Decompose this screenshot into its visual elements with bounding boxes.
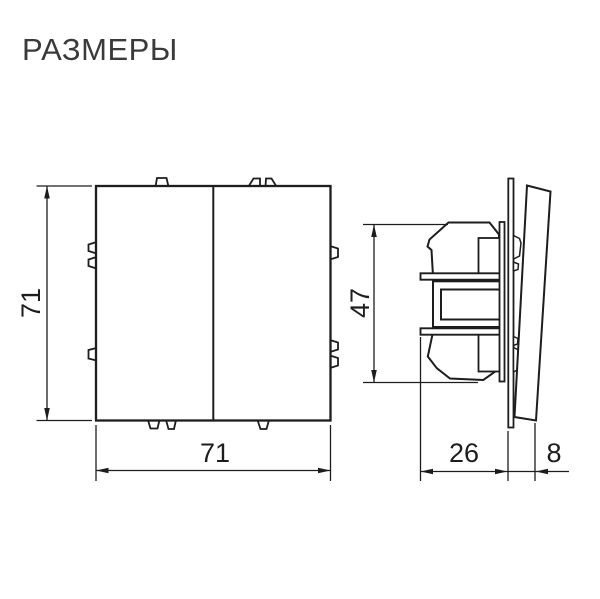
dim-side-protrusion-label: 8 — [546, 438, 561, 468]
arrowhead-up — [371, 225, 377, 238]
arrowhead-left — [96, 468, 109, 474]
arrowhead-right — [495, 469, 508, 475]
mechanism-step-bottom — [479, 333, 502, 372]
mounting-ear-top — [421, 273, 502, 279]
dim-side-depth-label: 26 — [449, 438, 479, 468]
arrowhead-left-outside — [536, 469, 549, 475]
side-view — [421, 179, 551, 428]
dim-front-height-label: 71 — [16, 288, 46, 318]
arrowhead-down — [44, 408, 50, 421]
arrowhead-up — [44, 186, 50, 199]
arrowhead-left — [421, 469, 434, 475]
mechanism-step-top — [479, 238, 502, 276]
arrowhead-right — [318, 468, 331, 474]
dim-front-width: 71 — [96, 425, 331, 481]
mounting-ear-bottom — [421, 328, 502, 334]
dim-side-height-label: 47 — [345, 288, 375, 318]
actuator-tab — [514, 337, 519, 346]
arrowhead-down — [371, 370, 377, 383]
frame-plate — [508, 179, 513, 428]
dimensions-drawing: 71 71 — [0, 0, 600, 599]
mechanism-face-strip — [500, 222, 505, 382]
front-view — [89, 178, 339, 429]
actuator-tab — [514, 262, 519, 271]
actuator-tab — [514, 236, 522, 260]
rocker-side-profile — [515, 186, 551, 421]
dim-front-height: 71 — [16, 186, 92, 421]
dim-front-width-label: 71 — [200, 438, 230, 468]
